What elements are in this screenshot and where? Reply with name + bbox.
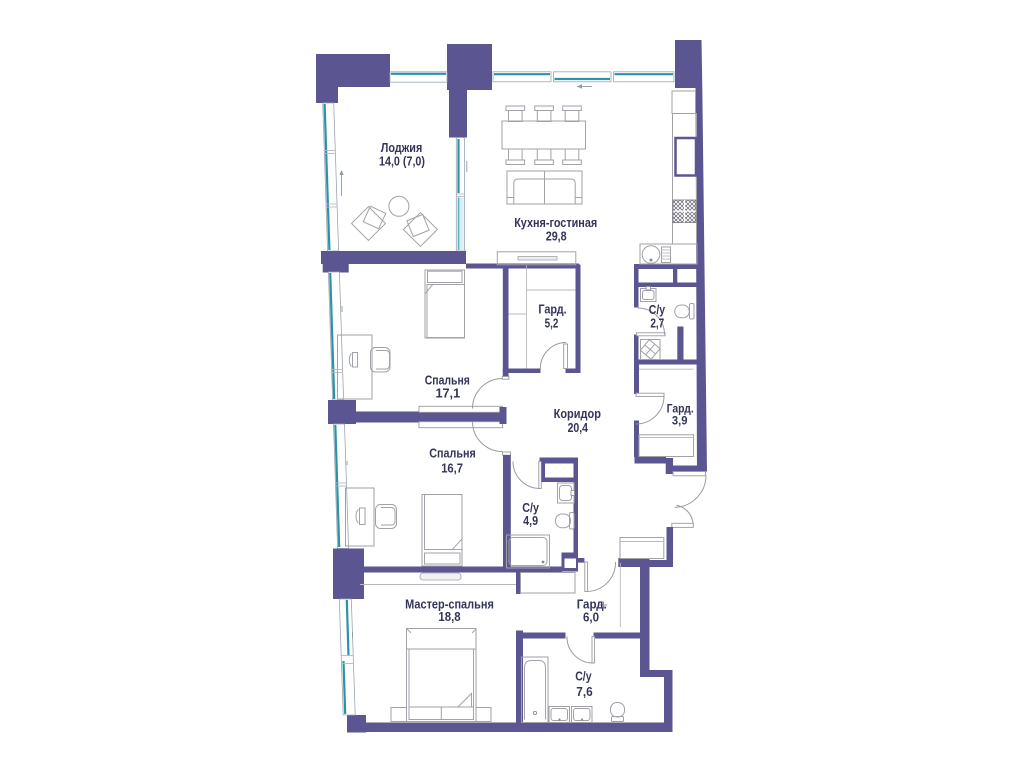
svg-text:Гард.: Гард. bbox=[538, 303, 566, 317]
svg-text:18,8: 18,8 bbox=[438, 609, 460, 624]
svg-text:29,8: 29,8 bbox=[546, 229, 567, 244]
svg-text:20,4: 20,4 bbox=[568, 420, 589, 435]
svg-text:2,7: 2,7 bbox=[650, 316, 664, 330]
svg-text:С/у: С/у bbox=[522, 501, 539, 515]
svg-text:7,6: 7,6 bbox=[576, 685, 592, 699]
svg-text:5,2: 5,2 bbox=[545, 317, 559, 331]
svg-text:6,0: 6,0 bbox=[583, 611, 599, 625]
svg-text:Гард.: Гард. bbox=[577, 598, 607, 612]
svg-text:С/у: С/у bbox=[649, 303, 665, 317]
svg-text:3,9: 3,9 bbox=[672, 414, 688, 428]
svg-text:17,1: 17,1 bbox=[435, 385, 460, 400]
svg-text:С/у: С/у bbox=[575, 670, 591, 684]
svg-text:14,0 (7,0): 14,0 (7,0) bbox=[379, 154, 425, 169]
svg-text:4,9: 4,9 bbox=[523, 514, 538, 528]
svg-text:16,7: 16,7 bbox=[441, 461, 463, 476]
svg-text:Спальня: Спальня bbox=[429, 446, 476, 461]
svg-text:Коридор: Коридор bbox=[554, 406, 601, 421]
